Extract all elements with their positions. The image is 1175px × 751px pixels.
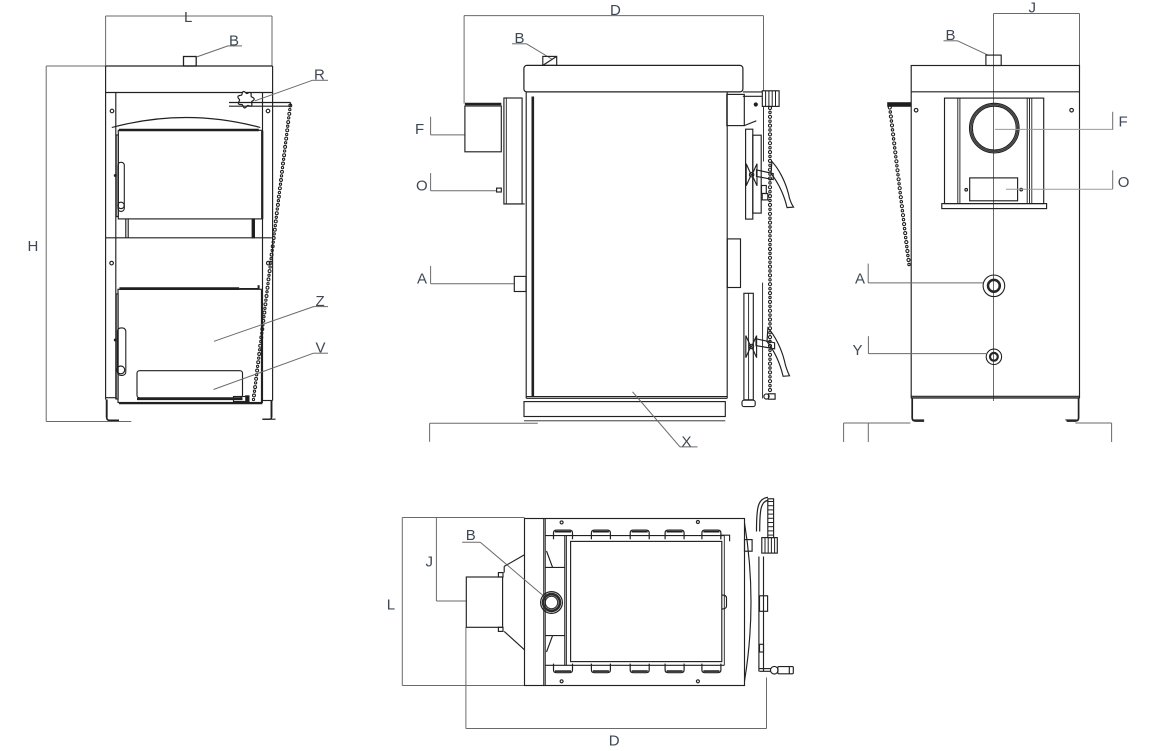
svg-text:F: F bbox=[415, 121, 424, 138]
svg-text:Z: Z bbox=[316, 293, 325, 310]
svg-text:L: L bbox=[387, 596, 395, 613]
svg-text:B: B bbox=[946, 27, 956, 44]
svg-text:F: F bbox=[1119, 113, 1128, 130]
svg-text:B: B bbox=[466, 527, 476, 544]
svg-text:J: J bbox=[426, 554, 434, 571]
svg-text:V: V bbox=[316, 340, 326, 357]
svg-text:D: D bbox=[610, 2, 621, 19]
svg-text:Y: Y bbox=[853, 342, 863, 359]
svg-text:B: B bbox=[229, 32, 239, 49]
svg-text:X: X bbox=[682, 433, 692, 450]
svg-text:O: O bbox=[416, 177, 428, 194]
svg-text:L: L bbox=[184, 9, 192, 26]
svg-text:R: R bbox=[314, 67, 325, 84]
svg-text:D: D bbox=[609, 732, 620, 749]
svg-text:H: H bbox=[28, 238, 39, 255]
svg-text:B: B bbox=[515, 30, 525, 47]
svg-text:J: J bbox=[1029, 0, 1037, 17]
svg-text:A: A bbox=[855, 270, 865, 287]
svg-text:O: O bbox=[1118, 174, 1130, 191]
svg-text:A: A bbox=[417, 270, 427, 287]
